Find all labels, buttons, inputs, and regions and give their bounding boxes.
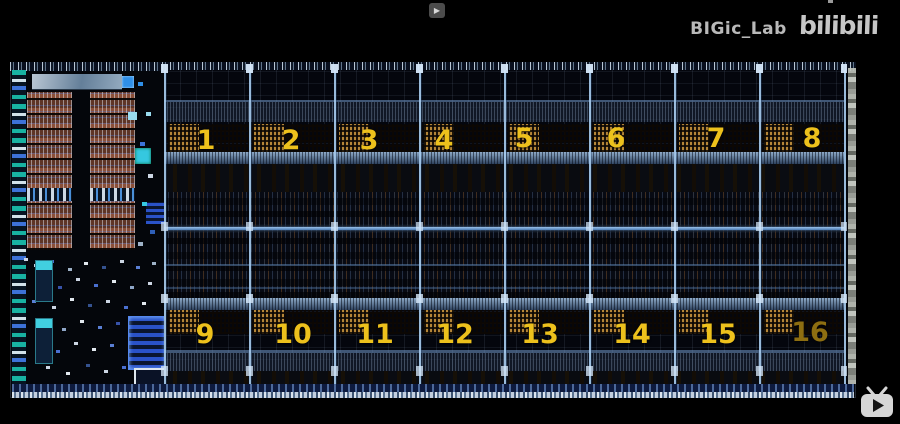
core-label-12: 12: [433, 320, 477, 350]
core-label-8: 8: [790, 124, 834, 154]
bilibili-tv-icon: [858, 386, 896, 420]
core-label-5: 5: [502, 124, 546, 154]
watermark: BIGic_Lab bilibili: [690, 11, 878, 40]
bilibili-logo-text: bilibili: [798, 11, 878, 40]
die-scattered-blue-bits: [138, 82, 143, 86]
die-bottom-navy-bar: [12, 384, 854, 392]
die-divider-caps: [161, 366, 847, 376]
die-blue-block: [122, 76, 134, 88]
video-play-badge-icon: ▶: [429, 3, 445, 18]
core-label-3: 3: [347, 126, 391, 156]
die-blue-striped-bit: [146, 202, 164, 224]
die-cyan-header-block: [35, 260, 53, 302]
die-cyan-header-block: [35, 318, 53, 364]
die-fuse-dot-field: [24, 258, 28, 261]
die-bottom-edge: [12, 392, 854, 398]
die-left-pad-strip: [12, 70, 26, 386]
die-divider-caps: [161, 64, 847, 73]
core-label-2: 2: [269, 126, 313, 156]
die-divider-caps: [161, 294, 847, 303]
core-label-1: 1: [184, 126, 228, 156]
core-label-6: 6: [594, 124, 638, 154]
timeline-tick: [828, 0, 833, 3]
core-label-4: 4: [422, 126, 466, 156]
core-label-13: 13: [518, 320, 562, 350]
core-label-10: 10: [271, 320, 315, 350]
brand-text: BIGic_Lab: [690, 19, 787, 39]
core-label-15: 15: [696, 320, 740, 350]
die-silver-band: [32, 74, 122, 90]
die-blue-block: [128, 112, 137, 120]
core-label-7: 7: [694, 124, 738, 154]
die-cyan-block: [135, 148, 151, 164]
core-label-14: 14: [610, 320, 654, 350]
core-label-9: 9: [183, 320, 227, 350]
die-memory-column-left: [27, 92, 72, 250]
chip-die-photo: 1 2 3 4 5 6 7 8 9 10 11 12 13 14 15 16: [10, 62, 856, 398]
die-right-edge: [848, 68, 856, 384]
core-label-16: 16: [788, 318, 832, 348]
die-blue-stripe-block: [128, 316, 166, 370]
core-label-11: 11: [353, 320, 397, 350]
die-divider-caps: [161, 222, 847, 231]
